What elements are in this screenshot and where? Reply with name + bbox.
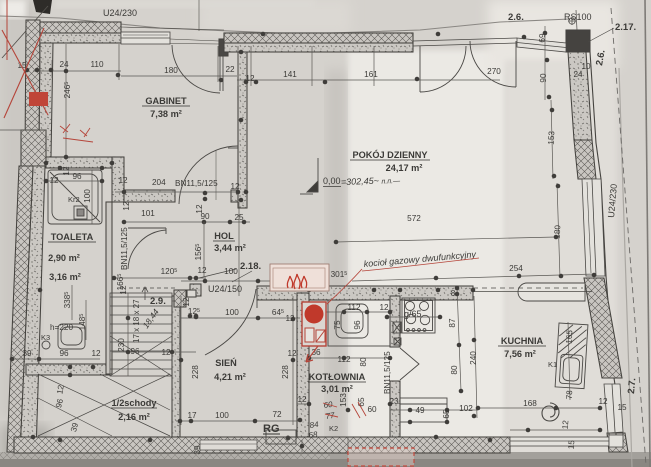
svg-text:15: 15 [617, 403, 627, 412]
svg-text:84: 84 [309, 420, 320, 430]
svg-text:87: 87 [448, 318, 457, 328]
svg-text:10: 10 [581, 62, 591, 71]
svg-text:1/2schody: 1/2schody [112, 398, 158, 408]
svg-text:24: 24 [59, 60, 69, 69]
svg-text:BN11,5/125: BN11,5/125 [175, 179, 218, 188]
svg-text:96: 96 [72, 172, 82, 181]
svg-text:39: 39 [22, 349, 32, 358]
svg-text:Kr2: Kr2 [68, 195, 80, 204]
svg-text:65: 65 [357, 397, 366, 407]
svg-text:80: 80 [359, 357, 368, 367]
svg-text:12: 12 [245, 74, 255, 83]
svg-text:12: 12 [598, 397, 608, 406]
svg-text:153: 153 [339, 393, 348, 407]
svg-text:270: 270 [487, 67, 501, 76]
svg-text:75: 75 [333, 320, 342, 330]
svg-text:204: 204 [152, 178, 166, 187]
svg-text:12: 12 [91, 349, 101, 358]
svg-text:180: 180 [553, 224, 563, 239]
svg-text:100: 100 [224, 267, 238, 276]
svg-text:96: 96 [353, 320, 362, 330]
svg-text:12: 12 [62, 166, 71, 176]
svg-text:12: 12 [197, 266, 207, 275]
svg-text:161: 161 [364, 70, 378, 79]
svg-text:HOL: HOL [214, 231, 234, 241]
svg-text:25: 25 [234, 213, 244, 222]
svg-text:RS100: RS100 [564, 12, 592, 22]
svg-text:90: 90 [539, 73, 548, 83]
svg-text:100: 100 [225, 308, 239, 317]
svg-text:72: 72 [272, 410, 282, 419]
svg-text:24: 24 [573, 70, 583, 79]
svg-text:KOTŁOWNIA: KOTŁOWNIA [309, 372, 366, 382]
svg-text:2.6.: 2.6. [508, 12, 524, 23]
svg-text:102: 102 [459, 404, 473, 413]
svg-text:141: 141 [283, 70, 297, 79]
svg-text:RG: RG [263, 423, 280, 435]
svg-text:100: 100 [83, 189, 92, 203]
svg-text:7,56 m²: 7,56 m² [504, 349, 536, 359]
svg-text:2.9.: 2.9. [150, 296, 166, 307]
svg-text:168: 168 [523, 399, 537, 408]
svg-text:96: 96 [59, 349, 69, 358]
svg-text:100: 100 [215, 411, 229, 420]
svg-text:17: 17 [187, 411, 197, 420]
svg-text:23: 23 [389, 397, 399, 406]
svg-text:2.7.: 2.7. [626, 378, 638, 395]
svg-text:2,90 m²: 2,90 m² [48, 253, 80, 263]
svg-text:12: 12 [49, 176, 59, 185]
svg-text:90: 90 [200, 212, 210, 221]
svg-text:230: 230 [117, 338, 126, 352]
svg-text:49: 49 [415, 406, 425, 415]
svg-text:228: 228 [281, 365, 290, 379]
svg-text:228: 228 [191, 365, 200, 379]
svg-text:165: 165 [565, 329, 575, 344]
svg-text:572: 572 [407, 214, 421, 223]
svg-text:3,16 m²: 3,16 m² [49, 272, 81, 282]
svg-text:3,01 m²: 3,01 m² [321, 384, 353, 394]
svg-text:SIEŃ: SIEŃ [215, 357, 237, 368]
svg-text:U24/230: U24/230 [103, 8, 137, 18]
svg-text:2,16 m²: 2,16 m² [118, 412, 150, 422]
svg-text:12: 12 [122, 201, 131, 211]
svg-text:78: 78 [565, 390, 574, 400]
svg-text:12: 12 [297, 395, 307, 404]
svg-text:110: 110 [90, 60, 103, 69]
svg-text:12: 12 [118, 176, 128, 185]
svg-text:17 x 18 x 27: 17 x 18 x 27 [132, 299, 141, 343]
svg-text:g/65: g/65 [404, 309, 422, 319]
svg-text:153: 153 [547, 130, 557, 145]
svg-text:K3: K3 [41, 333, 50, 342]
svg-text:POKÓJ DZIENNY: POKÓJ DZIENNY [352, 149, 427, 160]
svg-text:180: 180 [164, 66, 178, 75]
svg-text:0,00: 0,00 [323, 176, 341, 186]
svg-text:KUCHNIA: KUCHNIA [501, 336, 544, 346]
svg-text:96: 96 [130, 347, 140, 356]
svg-text:68: 68 [308, 430, 319, 440]
svg-text:K1: K1 [548, 360, 557, 369]
svg-text:2.18.: 2.18. [240, 261, 261, 272]
svg-text:24,17 m²: 24,17 m² [386, 163, 423, 173]
svg-text:12: 12 [161, 348, 171, 357]
svg-text:4,21 m²: 4,21 m² [214, 372, 246, 382]
svg-text:GABINET: GABINET [145, 96, 187, 106]
svg-text:2.17.: 2.17. [615, 22, 636, 33]
svg-text:12: 12 [230, 182, 240, 191]
svg-text:K2: K2 [329, 424, 338, 433]
svg-text:240: 240 [469, 351, 478, 365]
svg-text:3,44 m²: 3,44 m² [214, 243, 246, 253]
svg-text:15: 15 [567, 439, 577, 449]
svg-text:8: 8 [451, 289, 456, 298]
svg-text:112: 112 [337, 355, 350, 364]
svg-text:254: 254 [509, 264, 523, 273]
svg-text:12: 12 [561, 419, 571, 429]
svg-text:12: 12 [182, 297, 191, 307]
svg-text:69: 69 [538, 33, 547, 43]
svg-text:22: 22 [225, 65, 235, 74]
svg-text:101: 101 [141, 209, 155, 218]
svg-text:112: 112 [347, 303, 360, 312]
svg-text:12: 12 [119, 285, 128, 295]
svg-text:39: 39 [193, 445, 202, 455]
svg-text:7,38 m²: 7,38 m² [150, 109, 182, 119]
svg-text:60: 60 [367, 405, 377, 414]
svg-text:12: 12 [379, 303, 389, 312]
svg-text:12: 12 [285, 314, 295, 323]
svg-text:U24/150: U24/150 [208, 284, 242, 294]
svg-text:80: 80 [450, 365, 459, 375]
svg-text:12: 12 [287, 349, 297, 358]
svg-text:BN11,5/125: BN11,5/125 [120, 227, 129, 270]
svg-text:TOALETA: TOALETA [51, 232, 94, 242]
svg-text:BN11,5/125: BN11,5/125 [383, 351, 392, 394]
svg-text:65: 65 [442, 409, 451, 419]
svg-text:h=220: h=220 [50, 323, 73, 332]
